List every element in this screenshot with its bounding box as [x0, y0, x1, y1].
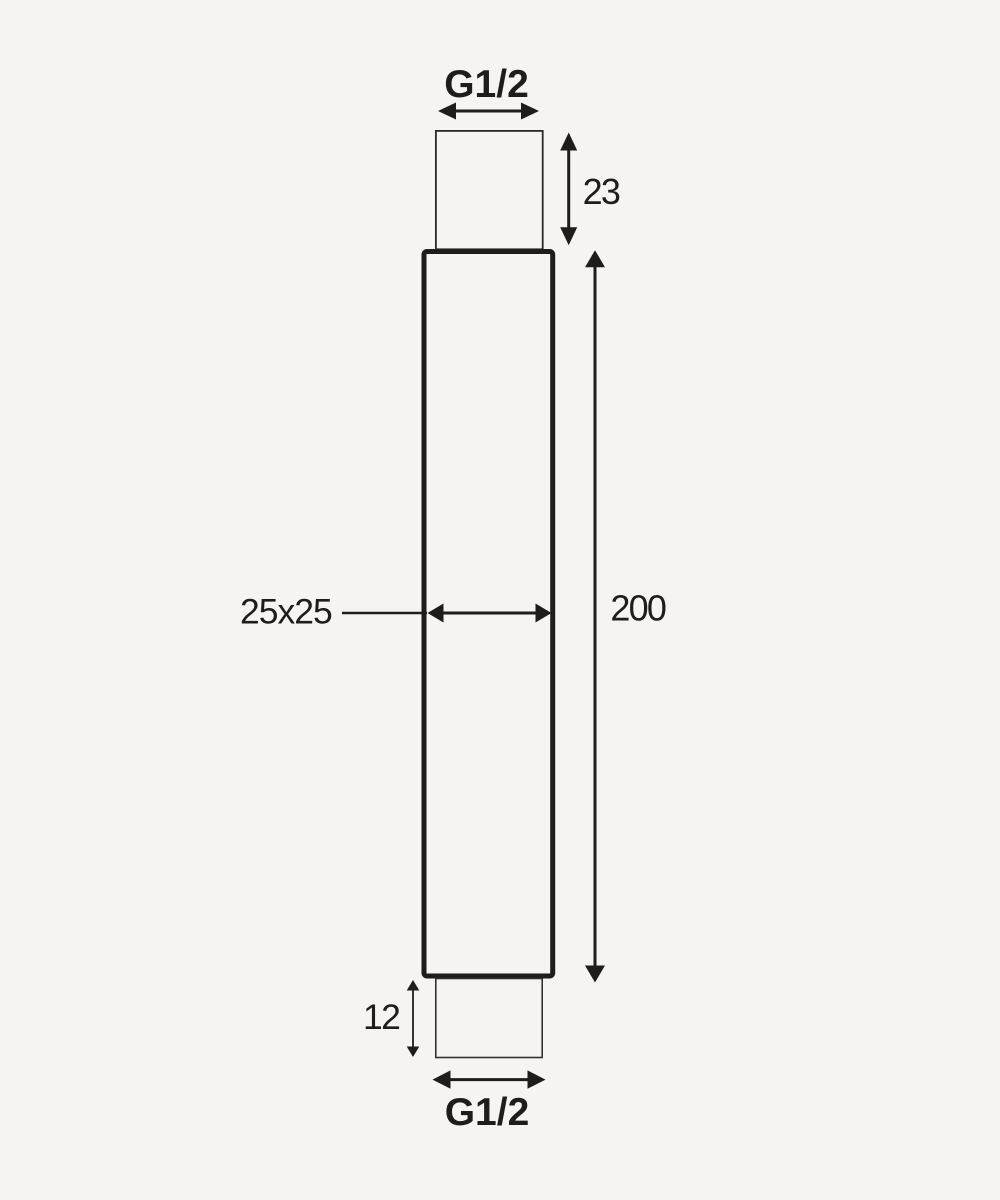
svg-text:G1/2: G1/2	[445, 1091, 530, 1134]
svg-text:200: 200	[610, 588, 665, 629]
svg-text:12: 12	[363, 997, 400, 1037]
svg-text:23: 23	[583, 171, 620, 212]
svg-text:25x25: 25x25	[240, 592, 332, 632]
svg-text:G1/2: G1/2	[444, 63, 529, 106]
